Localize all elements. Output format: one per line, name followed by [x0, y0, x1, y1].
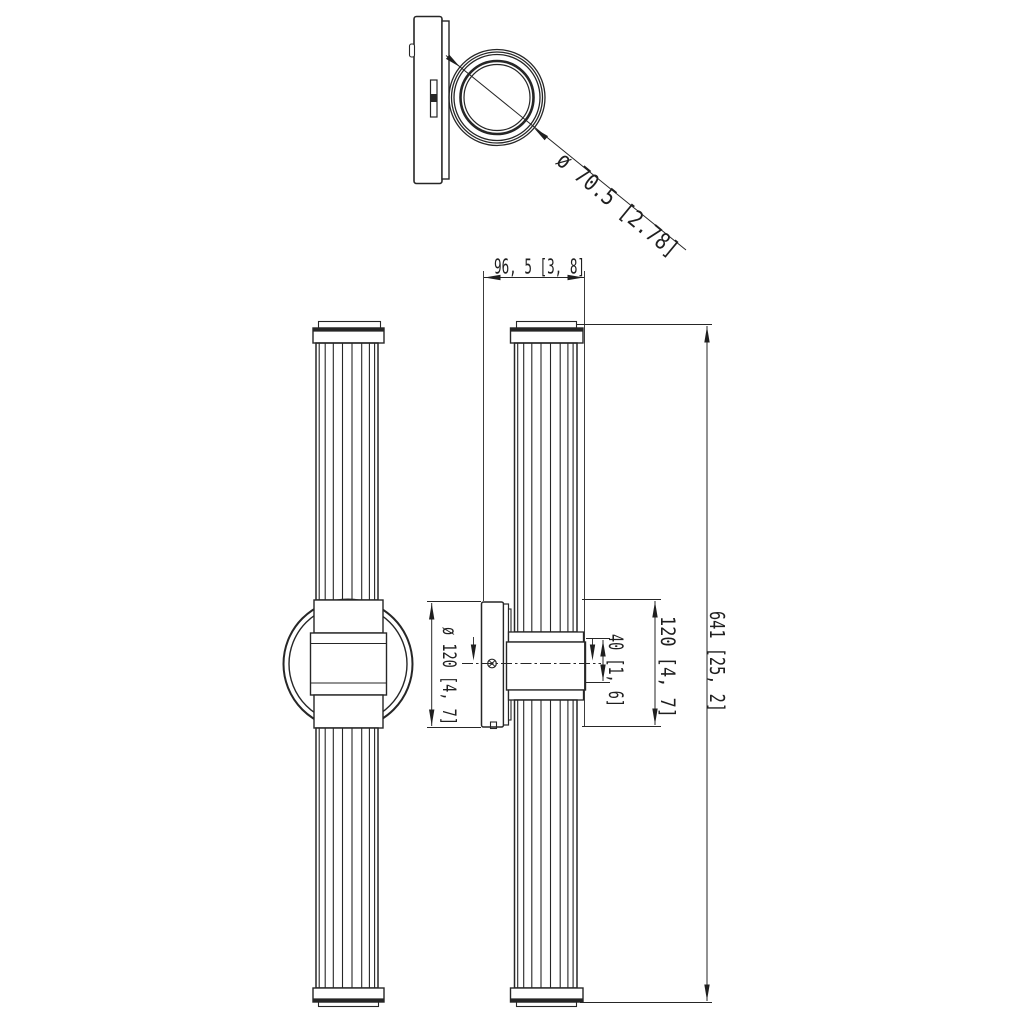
dim-overall-height-label: 641 [25, 2] — [705, 611, 729, 712]
ring-top-view — [449, 50, 545, 146]
sconce-dimension-drawing: ø 70.5 [2.78] 96, 5 [3, 8] ø 120 [4, 7] … — [0, 0, 1010, 1010]
dim-center-body-width-label: 40 [1, 6] — [604, 634, 627, 707]
dimension-ring-diameter: ø 70.5 [2.78] — [446, 55, 686, 263]
center-body-side — [507, 632, 586, 700]
front-view — [284, 322, 413, 1007]
top-finial — [319, 322, 381, 329]
side-view — [462, 322, 601, 1007]
center-body-front — [311, 600, 387, 728]
glass-tube-lower — [316, 728, 378, 988]
mounting-strip — [442, 21, 449, 179]
top-view — [410, 17, 546, 184]
top-finial-side — [517, 322, 577, 329]
dimension-center-body-height: 120 [4, 7] — [582, 600, 679, 727]
technical-drawing-page: ø 70.5 [2.78] 96, 5 [3, 8] ø 120 [4, 7] … — [0, 0, 1010, 1010]
mount-slot-block — [431, 94, 438, 102]
backplate-tab — [410, 44, 415, 57]
dim-ring-diameter-label: ø 70.5 [2.78] — [551, 147, 683, 262]
glass-tube-lower-side — [515, 700, 578, 988]
backplate-profile — [414, 17, 442, 184]
glass-tube-upper — [316, 343, 378, 600]
dim-center-body-height-label: 120 [4, 7] — [656, 616, 679, 718]
dim-backplate-diameter-label: ø 120 [4, 7] — [438, 627, 460, 725]
glass-tube-upper-side — [515, 343, 578, 632]
dim-fixture-depth-label: 96, 5 [3, 8] — [494, 255, 585, 279]
dimension-backplate-diameter: ø 120 [4, 7] — [427, 602, 481, 728]
